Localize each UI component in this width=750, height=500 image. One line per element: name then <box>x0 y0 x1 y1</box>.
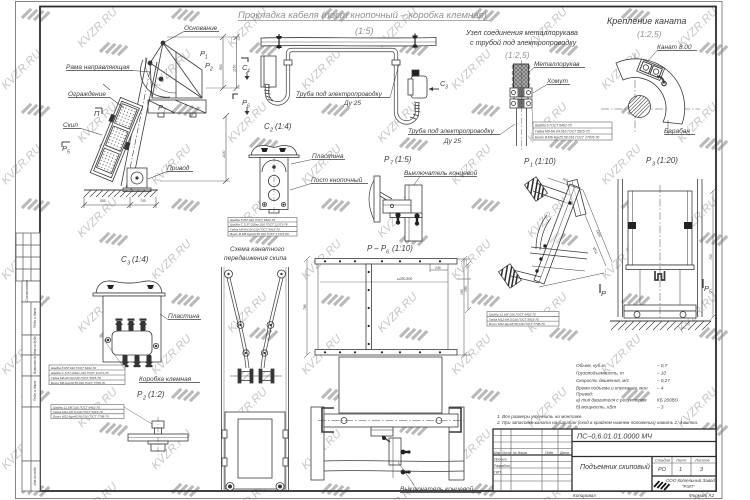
svg-text:Шайба С.5.37.016кп.016 ГОСТ 11: Шайба С.5.37.016кп.016 ГОСТ 11371-78 <box>230 223 288 227</box>
svg-text:Пост кнопочный: Пост кнопочный <box>311 176 363 184</box>
svg-text:5: 5 <box>67 150 70 156</box>
svg-text:ООО Котельный Завод: ООО Котельный Завод <box>666 478 715 483</box>
svg-text:передвижения скипа: передвижения скипа <box>224 254 287 262</box>
svg-text:P – P: P – P <box>367 244 387 253</box>
svg-text:2. При запасовке каната на бар: 2. При запасовке каната на барабан (сход… <box>496 419 698 425</box>
svg-text:Рама направляющая: Рама направляющая <box>66 64 130 71</box>
svg-text:2: 2 <box>209 67 213 73</box>
svg-text:Привод: Привод <box>167 164 190 172</box>
svg-text:700: 700 <box>709 254 713 260</box>
svg-text:– 4: – 4 <box>656 386 664 391</box>
svg-text:2: 2 <box>142 396 146 402</box>
svg-text:Проект.: Проект. <box>494 458 508 462</box>
svg-text:Ду 25: Ду 25 <box>343 100 361 107</box>
svg-text:Труба под электропроводку: Труба под электропроводку <box>296 90 383 98</box>
svg-text:Выключатель концевой: Выключатель концевой <box>400 485 474 493</box>
svg-text:Подп. и дата: Подп. и дата <box>33 381 37 401</box>
svg-text:Прокладка кабеля (пост кнопочн: Прокладка кабеля (пост кнопочный – короб… <box>238 10 487 21</box>
svg-text:б) мощность, кВт: б) мощность, кВт <box>576 405 616 410</box>
svg-text:Болт М12-6gх45.58.016 ГОСТ 779: Болт М12-6gх45.58.016 ГОСТ 7798-70 <box>489 322 545 326</box>
svg-text:Гайка М12-6Н.5.016 ГОСТ 5915-7: Гайка М12-6Н.5.016 ГОСТ 5915-70 <box>489 317 539 321</box>
svg-text:Инв.№ дубл.: Инв.№ дубл. <box>33 336 37 355</box>
svg-text:1150: 1150 <box>233 65 237 72</box>
svg-text:Разработ.: Разработ. <box>494 464 511 468</box>
svg-text:7: 7 <box>163 109 166 115</box>
svg-text:Шайба 5.65Г.016 ГОСТ 6402-70: Шайба 5.65Г.016 ГОСТ 6402-70 <box>230 218 275 222</box>
svg-text:Ограждение: Ограждение <box>68 90 106 98</box>
svg-text:Стадия: Стадия <box>655 458 671 463</box>
svg-text:(1:4): (1:4) <box>132 255 149 264</box>
svg-text:П: П <box>94 109 100 118</box>
svg-text:1100: 1100 <box>222 151 226 158</box>
svg-text:Формат А2: Формат А2 <box>689 493 715 498</box>
svg-text:3: 3 <box>445 85 448 91</box>
svg-text:500: 500 <box>100 199 106 203</box>
svg-text:Время подъема и опускания, мин: Время подъема и опускания, мин <box>576 386 648 391</box>
svg-text:Подп.: Подп. <box>545 451 554 455</box>
svg-text:900: 900 <box>219 64 223 70</box>
svg-text:Изм: Изм <box>494 451 501 455</box>
svg-text:Взам.инв.№: Взам.инв.№ <box>33 355 37 373</box>
svg-text:(1:2,5): (1:2,5) <box>505 50 530 60</box>
svg-text:1: 1 <box>205 55 208 61</box>
svg-text:240: 240 <box>434 266 441 270</box>
svg-text:Выключатель концевой: Выключатель концевой <box>404 169 478 177</box>
svg-text:– 3: – 3 <box>656 405 664 410</box>
svg-text:1. Все размеры уточнить на мон: 1. Все размеры уточнить на монтаже. <box>497 414 583 419</box>
svg-text:(1:10): (1:10) <box>535 157 556 166</box>
svg-text:Подп. и дата: Подп. и дата <box>33 308 37 328</box>
svg-text:– 0,7: – 0,7 <box>656 363 668 368</box>
svg-text:Труба под электропроводку: Труба под электропроводку <box>408 127 495 135</box>
svg-text:Металлорукав: Металлорукав <box>534 61 580 68</box>
svg-text:Пластина: Пластина <box>312 153 344 160</box>
svg-text:(1:4): (1:4) <box>275 122 292 131</box>
svg-text:Гайка М5-6Н.04.016 ГОСТ 5915-7: Гайка М5-6Н.04.016 ГОСТ 5915-70 <box>230 227 280 231</box>
svg-text:Лист: Лист <box>501 451 511 455</box>
svg-text:Листов: Листов <box>694 458 710 463</box>
svg-text:Скорость движения, м/с: Скорость движения, м/с <box>576 378 630 383</box>
svg-text:5: 5 <box>709 290 712 296</box>
svg-text:Схема канатного: Схема канатного <box>230 246 285 253</box>
svg-text:Болт В.М6-6gх25.58.016 ГОСТ 17: Болт В.М6-6gх25.58.016 ГОСТ 17676-70 <box>535 136 599 140</box>
svg-text:КБ 200ВО: КБ 200ВО <box>657 398 679 403</box>
svg-text:– 10: – 10 <box>656 371 666 376</box>
svg-text:Лист: Лист <box>675 458 687 463</box>
svg-text:Крепление каната: Крепление каната <box>607 16 686 26</box>
svg-text:Дата: Дата <box>559 451 569 455</box>
svg-text:РО: РО <box>658 467 667 473</box>
svg-text:Шайба С.8.37.016кп.016 ГОСТ 11: Шайба С.8.37.016кп.016 ГОСТ 11371-78 <box>51 371 109 375</box>
svg-text:Объем, куб.м: Объем, куб.м <box>576 363 605 368</box>
svg-text:№ докум.: № докум. <box>513 451 528 455</box>
svg-text:с трубой под электропроводку: с трубой под электропроводку <box>470 38 577 47</box>
svg-text:P: P <box>601 289 606 298</box>
svg-text:Шайба 8.65Г.016 ГОСТ 6402-70: Шайба 8.65Г.016 ГОСТ 6402-70 <box>51 366 96 370</box>
svg-text:1: 1 <box>679 467 682 473</box>
svg-text:а) тип двигателя с редуктором: а) тип двигателя с редуктором <box>576 398 647 403</box>
svg-text:– 0,27: – 0,27 <box>656 378 670 383</box>
svg-text:Скип: Скип <box>63 122 78 129</box>
svg-text:Согласовано: Согласовано <box>25 280 29 302</box>
svg-text:(1:20): (1:20) <box>657 156 678 165</box>
svg-text:ω250-800: ω250-800 <box>397 277 412 281</box>
svg-text:Шайба 12.65Г.016 ГОСТ 6402-70: Шайба 12.65Г.016 ГОСТ 6402-70 <box>489 313 536 317</box>
svg-text:"РЭП": "РЭП" <box>682 484 695 489</box>
svg-text:700: 700 <box>140 199 146 203</box>
svg-text:190: 190 <box>464 286 468 292</box>
svg-text:Подъемник скиповый: Подъемник скиповый <box>580 463 650 471</box>
svg-text:780: 780 <box>303 304 307 310</box>
svg-text:Гайка М6-6Н.04.016 ГОСТ 5915-7: Гайка М6-6Н.04.016 ГОСТ 5915-70 <box>535 130 590 134</box>
svg-text:Хомут: Хомут <box>546 78 568 85</box>
svg-text:Узел соединения металлорукава: Узел соединения металлорукава <box>465 28 578 37</box>
svg-text:Канат 8.00: Канат 8.00 <box>657 44 692 51</box>
svg-text:Пластина: Пластина <box>168 313 200 320</box>
svg-text:(1:10): (1:10) <box>392 244 413 253</box>
svg-text:Винт В.М5-6gх20.58.016 ГОСТ 17: Винт В.М5-6gх20.58.016 ГОСТ 17473-80 <box>230 232 289 236</box>
svg-text:Шайба 6 ГОСТ 6402-70: Шайба 6 ГОСТ 6402-70 <box>535 124 572 128</box>
svg-text:(1:2): (1:2) <box>148 390 165 399</box>
svg-text:Болт М12-6gх40.58.016 ГОСТ 779: Болт М12-6gх40.58.016 ГОСТ 7798-70 <box>53 415 109 419</box>
svg-text:Основание: Основание <box>184 25 218 32</box>
svg-text:Ду 25: Ду 25 <box>443 138 461 145</box>
svg-text:Грузоподъемность, т: Грузоподъемность, т <box>576 371 624 376</box>
svg-text:1: 1 <box>530 163 533 169</box>
svg-text:(1:2,5): (1:2,5) <box>637 29 662 39</box>
svg-text:2: 2 <box>269 128 273 134</box>
svg-text:Привод:: Привод: <box>576 392 594 397</box>
svg-text:Копировал: Копировал <box>573 493 596 498</box>
svg-text:Гайка М8-6Н.04.016 ГОСТ 5915-7: Гайка М8-6Н.04.016 ГОСТ 5915-70 <box>51 376 101 380</box>
svg-text:Гайка М12-6Н.5.016 ГОСТ 5915-7: Гайка М12-6Н.5.016 ГОСТ 5915-70 <box>53 410 103 414</box>
svg-text:ГИП: ГИП <box>494 471 501 475</box>
svg-text:(1:5): (1:5) <box>355 26 374 36</box>
svg-text:Инв.№ подл.: Инв.№ подл. <box>33 466 37 485</box>
svg-text:ПС–0,6.01.01.0000 МЧ: ПС–0,6.01.01.0000 МЧ <box>577 432 652 441</box>
svg-text:Коробка клемная: Коробка клемная <box>139 375 192 383</box>
svg-text:(1:5): (1:5) <box>395 155 412 164</box>
svg-text:Шайба 12.65Г.016 ГОСТ 6402-70: Шайба 12.65Г.016 ГОСТ 6402-70 <box>53 405 100 409</box>
svg-text:Болт М8-6gх30.58.016 ГОСТ 7798: Болт М8-6gх30.58.016 ГОСТ 7798-70 <box>51 381 105 385</box>
